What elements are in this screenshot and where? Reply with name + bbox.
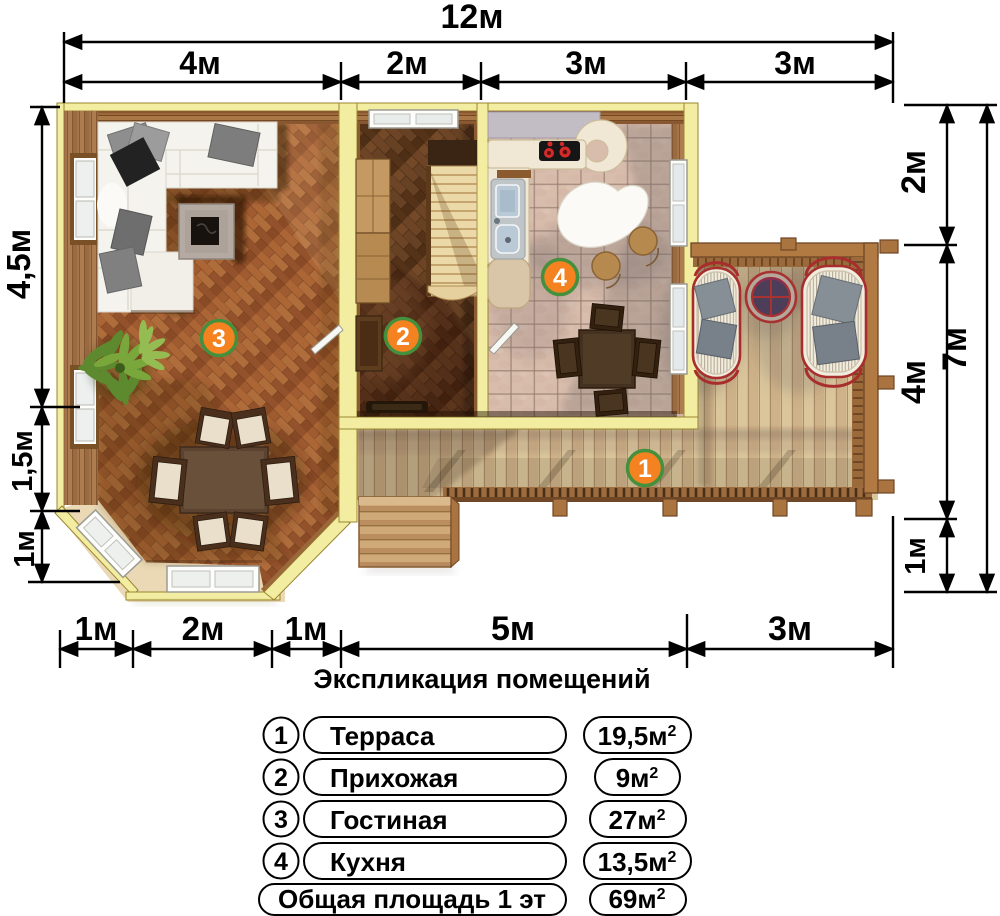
svg-text:Общая площадь 1 эт: Общая площадь 1 эт — [278, 884, 546, 914]
svg-text:4: 4 — [274, 848, 288, 876]
svg-text:3: 3 — [274, 806, 288, 834]
svg-text:19,5м2: 19,5м2 — [598, 721, 677, 751]
svg-text:4м: 4м — [895, 360, 933, 404]
svg-text:3м: 3м — [774, 45, 815, 81]
svg-text:3м: 3м — [768, 610, 812, 648]
svg-text:Гостиная: Гостиная — [330, 805, 448, 835]
svg-text:1: 1 — [638, 455, 652, 483]
svg-text:4,5м: 4,5м — [0, 229, 37, 299]
svg-text:7м: 7м — [936, 327, 974, 371]
svg-text:3м: 3м — [565, 45, 606, 81]
svg-text:2м: 2м — [386, 45, 427, 81]
svg-text:Прихожая: Прихожая — [330, 763, 458, 793]
svg-text:Терраса: Терраса — [330, 721, 435, 751]
svg-text:Кухня: Кухня — [330, 847, 406, 877]
svg-text:1м: 1м — [285, 610, 328, 647]
svg-text:1м: 1м — [75, 610, 118, 647]
svg-text:Экспликация помещений: Экспликация помещений — [313, 664, 650, 694]
svg-text:4м: 4м — [179, 45, 220, 81]
svg-text:5м: 5м — [491, 610, 535, 648]
svg-text:2м: 2м — [182, 610, 225, 647]
svg-text:1м: 1м — [900, 537, 932, 575]
svg-text:12м: 12м — [441, 0, 504, 36]
svg-text:1,5м: 1,5м — [7, 430, 39, 492]
svg-text:1: 1 — [274, 722, 288, 750]
svg-text:1м: 1м — [9, 530, 41, 568]
svg-text:4: 4 — [553, 264, 567, 292]
svg-text:2м: 2м — [895, 150, 933, 194]
svg-text:3: 3 — [212, 325, 226, 353]
svg-text:2: 2 — [274, 764, 288, 792]
svg-text:2: 2 — [396, 323, 410, 351]
svg-text:13,5м2: 13,5м2 — [598, 847, 677, 877]
